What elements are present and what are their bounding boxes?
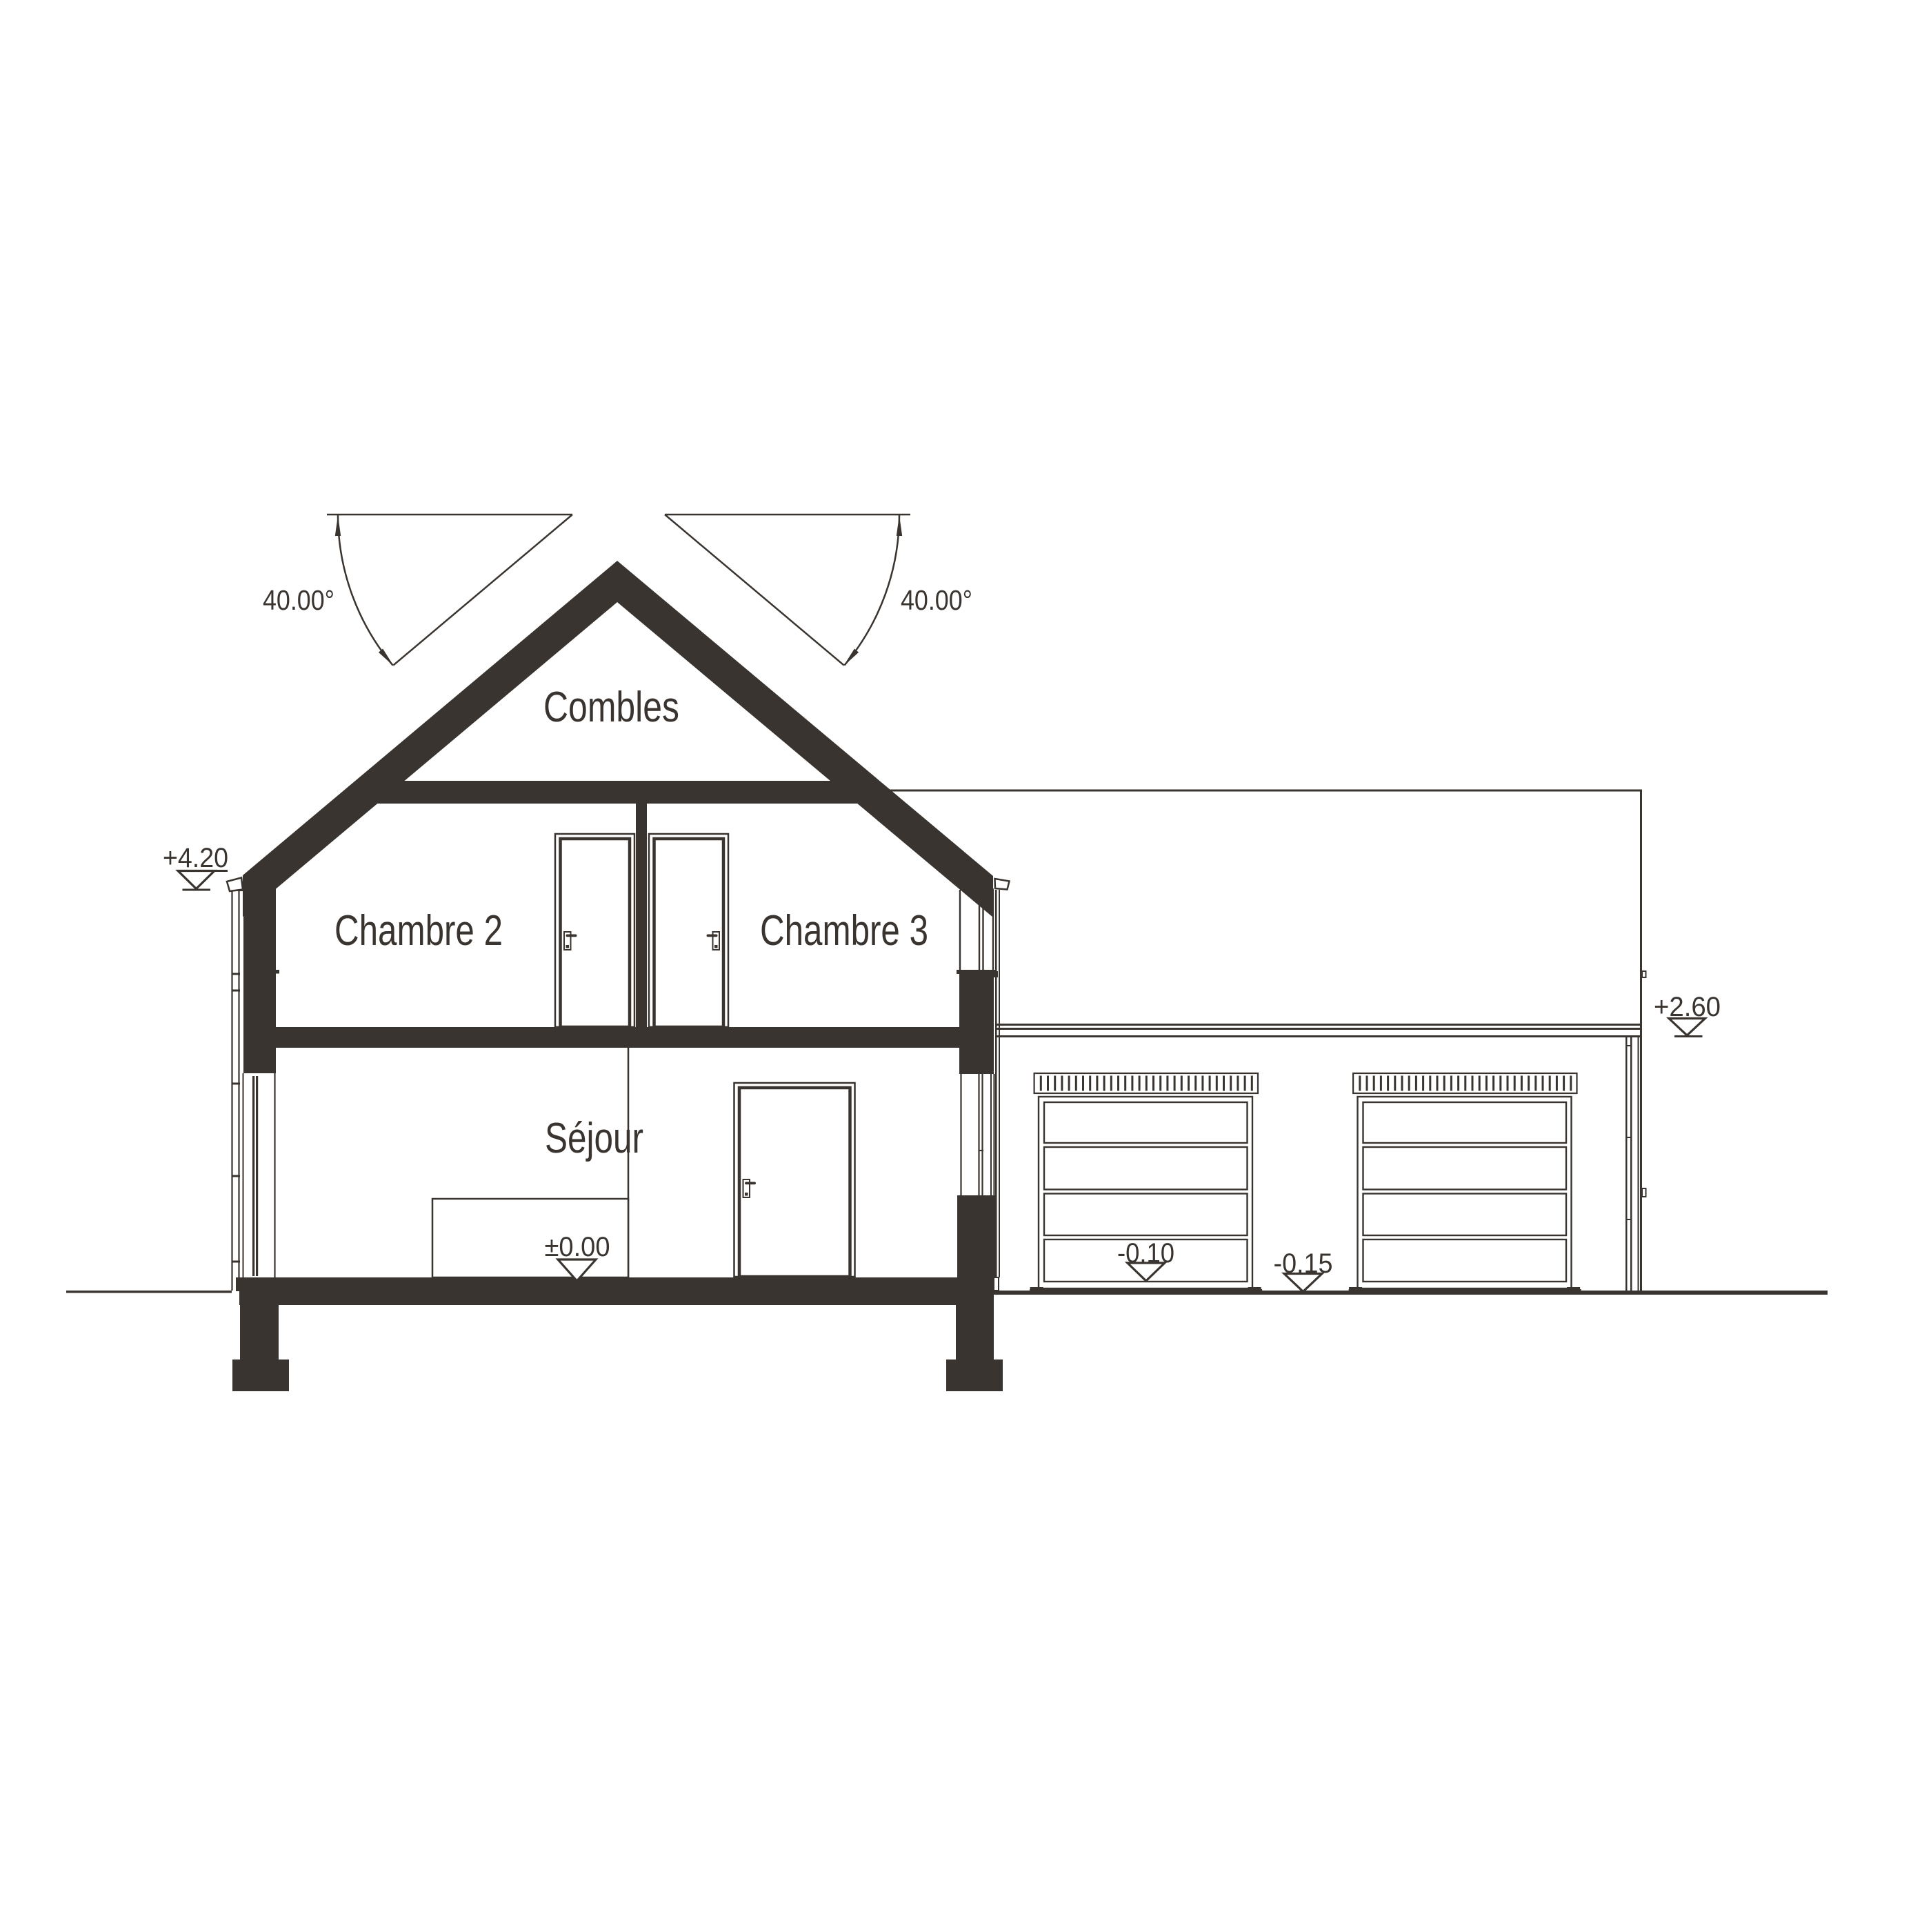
- svg-text:Séjour: Séjour: [545, 1115, 643, 1162]
- svg-text:+4.20: +4.20: [163, 843, 228, 873]
- svg-text:-0.15: -0.15: [1274, 1248, 1333, 1279]
- svg-text:Combles: Combles: [543, 684, 679, 731]
- svg-text:+2.60: +2.60: [1654, 992, 1721, 1022]
- svg-text:-0.10: -0.10: [1117, 1238, 1174, 1268]
- svg-text:Chambre 3: Chambre 3: [760, 907, 928, 955]
- svg-text:40.00°: 40.00°: [901, 584, 972, 616]
- svg-text:Chambre 2: Chambre 2: [334, 907, 503, 955]
- svg-text:40.00°: 40.00°: [263, 584, 334, 616]
- svg-text:±0.00: ±0.00: [545, 1232, 610, 1262]
